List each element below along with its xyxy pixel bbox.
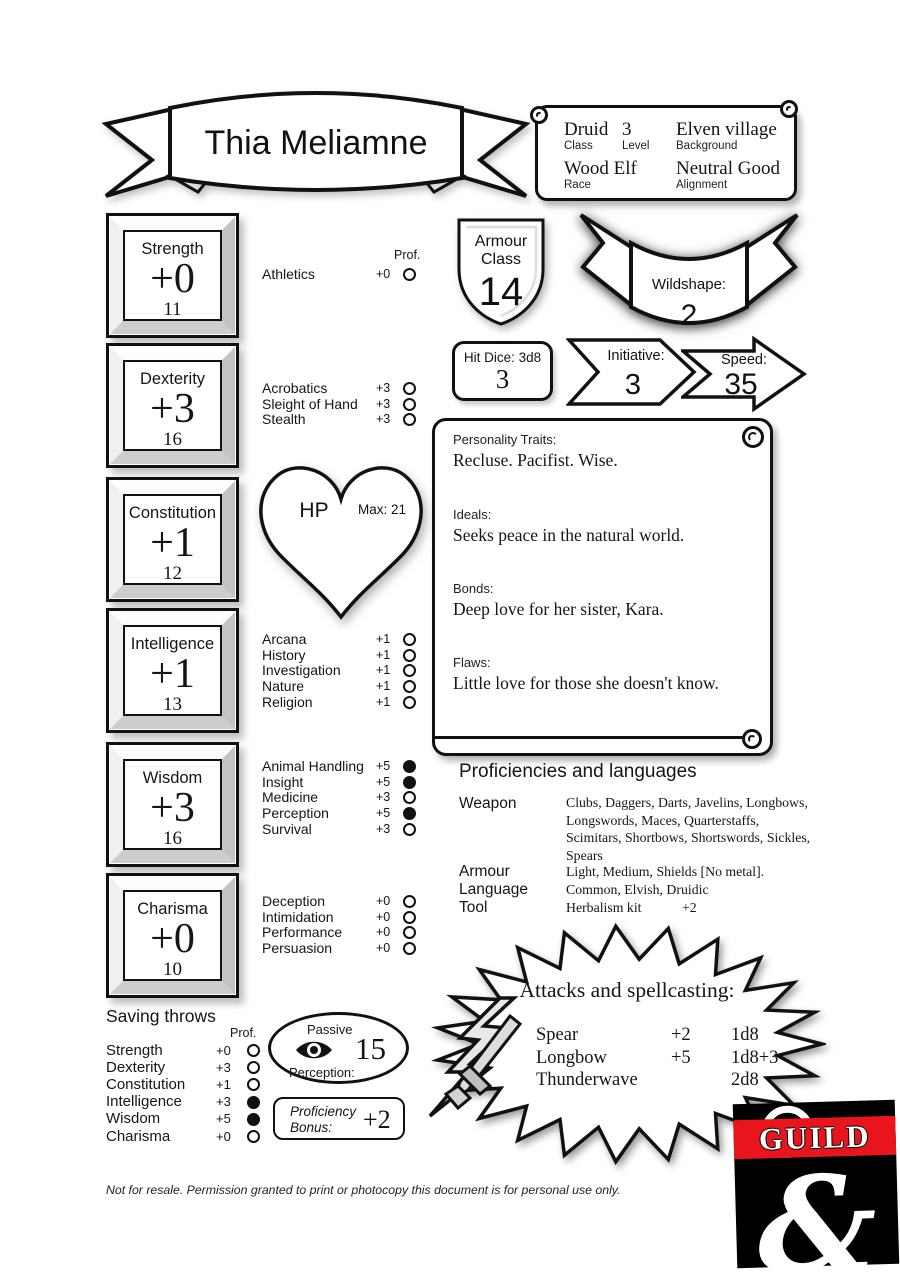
skill-modifier: +1 bbox=[376, 632, 403, 647]
initiative-label: Initiative: bbox=[607, 348, 664, 364]
saving-throws-prof-label: Prof. bbox=[230, 1026, 256, 1040]
skill-prof-checkbox[interactable] bbox=[403, 696, 416, 709]
ability-modifier: +1 bbox=[150, 522, 195, 565]
ability-box-dexterity: Dexterity +3 16 bbox=[106, 343, 239, 468]
skill-row: Investigation+1 bbox=[262, 663, 416, 679]
skill-group-strength: Athletics +0 bbox=[262, 267, 416, 283]
hit-dice-value: 3 bbox=[455, 365, 550, 395]
logo-text: GUILD bbox=[733, 1118, 896, 1159]
bonds-text: Deep love for her sister, Kara. bbox=[453, 599, 664, 621]
dms-guild-logo: GUILD & bbox=[733, 1100, 900, 1268]
footer-legal-text: Not for resale. Permission granted to pr… bbox=[106, 1183, 620, 1197]
skill-row: Medicine+3 bbox=[262, 790, 416, 806]
skill-prof-checkbox[interactable] bbox=[403, 649, 416, 662]
language-label: Language bbox=[459, 882, 528, 898]
scroll-curl-icon bbox=[530, 106, 548, 124]
saving-throws-list: Strength+0 Dexterity+3 Constitution+1 In… bbox=[106, 1042, 260, 1145]
save-modifier: +3 bbox=[216, 1094, 247, 1110]
skill-name: Nature bbox=[262, 679, 376, 694]
skill-group-dexterity: Acrobatics+3 Sleight of Hand+3 Stealth+3 bbox=[262, 381, 416, 428]
ideals-section: Ideals: Seeks peace in the natural world… bbox=[453, 508, 684, 547]
ability-score: 16 bbox=[163, 829, 182, 848]
save-modifier: +0 bbox=[216, 1129, 247, 1145]
skill-modifier: +0 bbox=[376, 267, 403, 282]
proficiency-bonus-label-2: Bonus: bbox=[290, 1120, 356, 1136]
passive-label-1: Passive bbox=[307, 1022, 353, 1037]
speed-value: 35 bbox=[724, 368, 757, 401]
attack-row: Thunderwave 2d8 bbox=[536, 1069, 816, 1092]
scroll-curl-icon bbox=[742, 729, 762, 749]
skill-modifier: +5 bbox=[376, 806, 403, 821]
skill-name: History bbox=[262, 648, 376, 663]
skill-name: Performance bbox=[262, 925, 376, 940]
ability-box-strength: Strength +0 11 bbox=[106, 213, 239, 338]
skill-name: Medicine bbox=[262, 790, 376, 805]
skill-name: Intimidation bbox=[262, 910, 376, 925]
ideals-text: Seeks peace in the natural world. bbox=[453, 525, 684, 547]
skill-row: Acrobatics+3 bbox=[262, 381, 416, 397]
initiative-chevron: Initiative: 3 bbox=[566, 337, 698, 407]
passive-perception-value: 15 bbox=[355, 1031, 386, 1067]
level-label: Level bbox=[622, 141, 650, 153]
attack-name: Longbow bbox=[536, 1047, 671, 1070]
initiative-value: 3 bbox=[625, 369, 641, 401]
skill-row: Athletics +0 bbox=[262, 267, 416, 283]
proficiency-bonus-value: +2 bbox=[363, 1105, 391, 1135]
save-modifier: +3 bbox=[216, 1060, 247, 1076]
skill-name: Investigation bbox=[262, 663, 376, 678]
bonds-section: Bonds: Deep love for her sister, Kara. bbox=[453, 582, 664, 621]
attack-name: Spear bbox=[536, 1024, 671, 1047]
character-info-scroll: Druid Class 3 Level Elven village Backgr… bbox=[535, 105, 797, 201]
skill-prof-checkbox[interactable] bbox=[403, 776, 416, 789]
skill-group-wisdom: Animal Handling+5 Insight+5 Medicine+3 P… bbox=[262, 759, 416, 837]
skill-prof-checkbox[interactable] bbox=[403, 268, 416, 281]
ability-modifier: +1 bbox=[150, 653, 195, 696]
skill-name: Deception bbox=[262, 894, 376, 909]
skill-name: Sleight of Hand bbox=[262, 397, 376, 412]
scroll-curl-icon bbox=[780, 100, 798, 118]
saving-throw-row: Wisdom+5 bbox=[106, 1111, 260, 1128]
bonds-label: Bonds: bbox=[453, 582, 664, 595]
attack-row: Longbow +5 1d8+3 bbox=[536, 1047, 816, 1070]
skill-name: Persuasion bbox=[262, 941, 376, 956]
attack-bonus: +2 bbox=[671, 1024, 731, 1047]
skill-name: Religion bbox=[262, 695, 376, 710]
armour-value: Light, Medium, Shields [No metal]. bbox=[566, 863, 818, 881]
scroll-roll-edge bbox=[433, 736, 746, 739]
skill-group-intelligence: Arcana+1 History+1 Investigation+1 Natur… bbox=[262, 632, 416, 710]
language-value: Common, Elvish, Druidic bbox=[566, 881, 818, 899]
weapon-label: Weapon bbox=[459, 796, 516, 812]
skill-row: Sleight of Hand+3 bbox=[262, 397, 416, 413]
skill-modifier: +0 bbox=[376, 925, 403, 940]
skill-row: Intimidation+0 bbox=[262, 910, 416, 926]
background-value: Elven village bbox=[676, 120, 777, 139]
traits-label: Personality Traits: bbox=[453, 433, 618, 446]
ability-score: 13 bbox=[163, 695, 182, 714]
wildshape-value: 2 bbox=[681, 299, 698, 332]
save-name: Charisma bbox=[106, 1129, 216, 1145]
scroll-curl-icon bbox=[742, 426, 764, 448]
skill-name: Acrobatics bbox=[262, 381, 376, 396]
skill-prof-checkbox[interactable] bbox=[403, 664, 416, 677]
attack-bonus: +5 bbox=[671, 1047, 731, 1070]
skill-modifier: +0 bbox=[376, 894, 403, 909]
skill-prof-checkbox[interactable] bbox=[403, 895, 416, 908]
skills-prof-label: Prof. bbox=[394, 248, 420, 262]
tool-value: Herbalism kit bbox=[566, 899, 642, 917]
saving-throw-row: Constitution+1 bbox=[106, 1076, 260, 1093]
skill-modifier: +0 bbox=[376, 910, 403, 925]
skill-prof-checkbox[interactable] bbox=[403, 823, 416, 836]
traits-text: Recluse. Pacifist. Wise. bbox=[453, 450, 618, 472]
personality-traits-section: Personality Traits: Recluse. Pacifist. W… bbox=[453, 433, 618, 472]
ability-box-constitution: Constitution +1 12 bbox=[106, 477, 239, 602]
save-name: Dexterity bbox=[106, 1060, 216, 1076]
ability-score: 11 bbox=[163, 300, 181, 319]
attack-row: Spear +2 1d8 bbox=[536, 1024, 816, 1047]
ability-box-intelligence: Intelligence +1 13 bbox=[106, 608, 239, 733]
save-name: Strength bbox=[106, 1043, 216, 1059]
armour-class-label-1: Armour bbox=[475, 233, 528, 250]
ability-score: 12 bbox=[163, 564, 182, 583]
skill-modifier: +5 bbox=[376, 759, 403, 774]
attack-damage: 1d8+3 bbox=[731, 1047, 816, 1070]
save-prof-checkbox[interactable] bbox=[247, 1044, 260, 1057]
skill-row: Deception+0 bbox=[262, 894, 416, 910]
ability-box-charisma: Charisma +0 10 bbox=[106, 873, 239, 998]
class-value: Druid bbox=[564, 120, 608, 139]
save-prof-checkbox[interactable] bbox=[247, 1078, 260, 1091]
skill-name: Perception bbox=[262, 806, 376, 821]
skill-row: Survival+3 bbox=[262, 821, 416, 837]
attack-bonus bbox=[671, 1069, 731, 1092]
skill-prof-checkbox[interactable] bbox=[403, 760, 416, 773]
skill-row: Religion+1 bbox=[262, 694, 416, 710]
speed-label: Speed: bbox=[721, 352, 767, 368]
skill-name: Survival bbox=[262, 822, 376, 837]
proficiencies-title: Proficiencies and languages bbox=[459, 762, 697, 781]
saving-throws-title: Saving throws bbox=[106, 1008, 216, 1026]
ability-modifier: +0 bbox=[150, 918, 195, 961]
armour-class-value: 14 bbox=[479, 270, 524, 314]
saving-throw-row: Strength+0 bbox=[106, 1042, 260, 1059]
character-name: Thia Meliamne bbox=[205, 124, 428, 162]
ability-modifier: +3 bbox=[150, 388, 195, 431]
ability-modifier: +3 bbox=[150, 787, 195, 830]
skill-row: Insight+5 bbox=[262, 775, 416, 791]
skill-row: Stealth+3 bbox=[262, 412, 416, 428]
skill-modifier: +1 bbox=[376, 648, 403, 663]
skill-row: Persuasion+0 bbox=[262, 941, 416, 957]
saving-throw-row: Intelligence+3 bbox=[106, 1094, 260, 1111]
skill-group-charisma: Deception+0 Intimidation+0 Performance+0… bbox=[262, 894, 416, 956]
ability-box-wisdom: Wisdom +3 16 bbox=[106, 742, 239, 867]
skill-modifier: +3 bbox=[376, 822, 403, 837]
save-modifier: +5 bbox=[216, 1111, 247, 1127]
skill-row: Arcana+1 bbox=[262, 632, 416, 648]
wildshape-banner: Wildshape: 2 bbox=[573, 203, 805, 353]
ability-modifier: +0 bbox=[150, 258, 195, 301]
saving-throw-row: Charisma+0 bbox=[106, 1128, 260, 1145]
save-prof-checkbox[interactable] bbox=[247, 1130, 260, 1143]
lightning-sword-icon bbox=[418, 994, 536, 1120]
attack-name: Thunderwave bbox=[536, 1069, 671, 1092]
speed-arrow: Speed: 35 bbox=[681, 335, 807, 413]
skill-name: Animal Handling bbox=[262, 759, 376, 774]
attack-damage: 2d8 bbox=[731, 1069, 816, 1092]
passive-label-2: Perception: bbox=[289, 1065, 355, 1080]
personality-scroll: Personality Traits: Recluse. Pacifist. W… bbox=[432, 418, 773, 756]
hp-heart: HP Max: 21 bbox=[252, 457, 430, 629]
flaws-label: Flaws: bbox=[453, 656, 719, 669]
background-label: Background bbox=[676, 141, 737, 153]
skill-row: History+1 bbox=[262, 648, 416, 664]
skill-modifier: +3 bbox=[376, 397, 403, 412]
skill-prof-checkbox[interactable] bbox=[403, 791, 416, 804]
alignment-label: Alignment bbox=[676, 180, 727, 192]
save-modifier: +0 bbox=[216, 1043, 247, 1059]
armour-label: Armour bbox=[459, 864, 510, 880]
skill-prof-checkbox[interactable] bbox=[403, 926, 416, 939]
skill-modifier: +3 bbox=[376, 381, 403, 396]
ampersand-dragon-icon: & bbox=[734, 1158, 900, 1273]
ability-score: 16 bbox=[163, 430, 182, 449]
tool-label: Tool bbox=[459, 900, 487, 916]
save-name: Constitution bbox=[106, 1077, 216, 1093]
ability-score: 10 bbox=[163, 960, 182, 979]
skill-name: Arcana bbox=[262, 632, 376, 647]
save-modifier: +1 bbox=[216, 1077, 247, 1093]
ideals-label: Ideals: bbox=[453, 508, 684, 521]
attacks-table: Spear +2 1d8 Longbow +5 1d8+3 Thunderwav… bbox=[536, 1024, 816, 1092]
wildshape-label: Wildshape: bbox=[652, 276, 726, 293]
skill-row: Perception+5 bbox=[262, 806, 416, 822]
armour-class-label-2: Class bbox=[481, 251, 521, 268]
level-value: 3 bbox=[622, 120, 632, 139]
save-prof-checkbox[interactable] bbox=[247, 1096, 260, 1109]
save-name: Intelligence bbox=[106, 1094, 216, 1110]
skill-prof-checkbox[interactable] bbox=[403, 911, 416, 924]
eye-icon bbox=[293, 1037, 335, 1063]
save-prof-checkbox[interactable] bbox=[247, 1061, 260, 1074]
hp-max-label: Max: 21 bbox=[358, 502, 406, 517]
skill-prof-checkbox[interactable] bbox=[403, 382, 416, 395]
skill-prof-checkbox[interactable] bbox=[403, 807, 416, 820]
skill-modifier: +5 bbox=[376, 775, 403, 790]
name-banner: Thia Meliamne bbox=[100, 86, 532, 202]
skill-modifier: +0 bbox=[376, 941, 403, 956]
skill-modifier: +1 bbox=[376, 679, 403, 694]
flaws-section: Flaws: Little love for those she doesn't… bbox=[453, 656, 719, 695]
save-prof-checkbox[interactable] bbox=[247, 1113, 260, 1126]
save-name: Wisdom bbox=[106, 1111, 216, 1127]
skill-prof-checkbox[interactable] bbox=[403, 398, 416, 411]
proficiency-bonus-label-1: Proficiency bbox=[290, 1104, 356, 1120]
proficiency-bonus-box: Proficiency Bonus: +2 bbox=[273, 1097, 405, 1140]
hit-dice-box: Hit Dice: 3d8 3 bbox=[452, 341, 553, 401]
race-value: Wood Elf bbox=[564, 159, 637, 178]
flaws-text: Little love for those she doesn't know. bbox=[453, 673, 719, 695]
skill-row: Performance+0 bbox=[262, 925, 416, 941]
skill-name: Insight bbox=[262, 775, 376, 790]
skill-modifier: +3 bbox=[376, 412, 403, 427]
skill-row: Animal Handling+5 bbox=[262, 759, 416, 775]
hit-dice-label: Hit Dice: 3d8 bbox=[455, 351, 550, 365]
skill-name: Stealth bbox=[262, 412, 376, 427]
race-label: Race bbox=[564, 180, 591, 192]
saving-throw-row: Dexterity+3 bbox=[106, 1059, 260, 1076]
skill-prof-checkbox[interactable] bbox=[403, 942, 416, 955]
attack-damage: 1d8 bbox=[731, 1024, 816, 1047]
alignment-value: Neutral Good bbox=[676, 159, 780, 178]
skill-prof-checkbox[interactable] bbox=[403, 633, 416, 646]
skill-name: Athletics bbox=[262, 267, 376, 282]
skill-modifier: +1 bbox=[376, 663, 403, 678]
passive-perception-oval: Passive 15 Perception: bbox=[268, 1012, 409, 1084]
tool-bonus: +2 bbox=[682, 899, 697, 917]
armour-class-shield: Armour Class 14 bbox=[452, 215, 550, 330]
class-label: Class bbox=[564, 141, 593, 153]
skill-modifier: +1 bbox=[376, 695, 403, 710]
skill-modifier: +3 bbox=[376, 790, 403, 805]
character-sheet: Thia Meliamne Druid Class 3 Level Elven … bbox=[0, 0, 900, 1273]
skill-prof-checkbox[interactable] bbox=[403, 413, 416, 426]
skill-prof-checkbox[interactable] bbox=[403, 680, 416, 693]
weapon-value: Clubs, Daggers, Darts, Javelins, Longbow… bbox=[566, 794, 818, 864]
skill-row: Nature+1 bbox=[262, 679, 416, 695]
hp-label: HP bbox=[299, 499, 328, 522]
